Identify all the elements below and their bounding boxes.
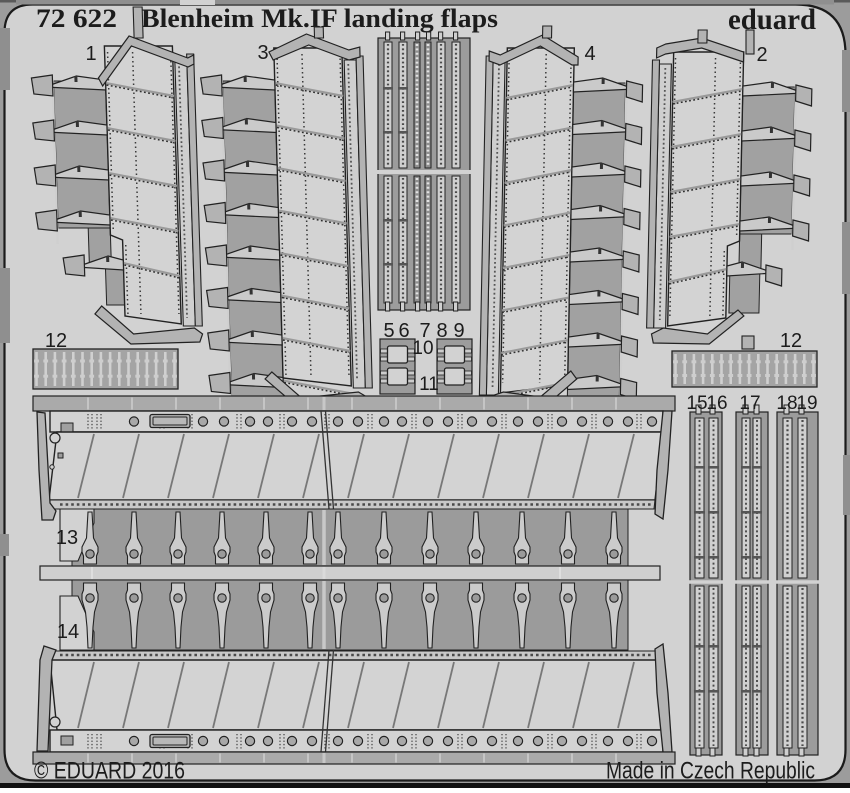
svg-text:15: 15 — [686, 393, 707, 414]
svg-text:1: 1 — [85, 43, 96, 65]
svg-text:3: 3 — [257, 42, 268, 64]
svg-text:14: 14 — [57, 621, 79, 643]
svg-text:11: 11 — [419, 374, 439, 395]
svg-text:72 622: 72 622 — [36, 4, 117, 33]
svg-text:17: 17 — [739, 393, 760, 414]
svg-text:© EDUARD 2016: © EDUARD 2016 — [34, 758, 185, 785]
svg-text:eduard: eduard — [728, 3, 816, 36]
svg-text:18: 18 — [776, 393, 797, 414]
svg-text:16: 16 — [706, 393, 727, 414]
svg-text:4: 4 — [584, 43, 595, 65]
svg-text:10: 10 — [412, 338, 433, 359]
svg-text:12: 12 — [780, 330, 802, 352]
svg-text:13: 13 — [56, 527, 78, 549]
svg-text:2: 2 — [756, 44, 767, 66]
svg-text:12: 12 — [45, 330, 67, 352]
svg-text:Made in Czech Republic: Made in Czech Republic — [606, 758, 815, 785]
svg-text:19: 19 — [796, 393, 817, 414]
